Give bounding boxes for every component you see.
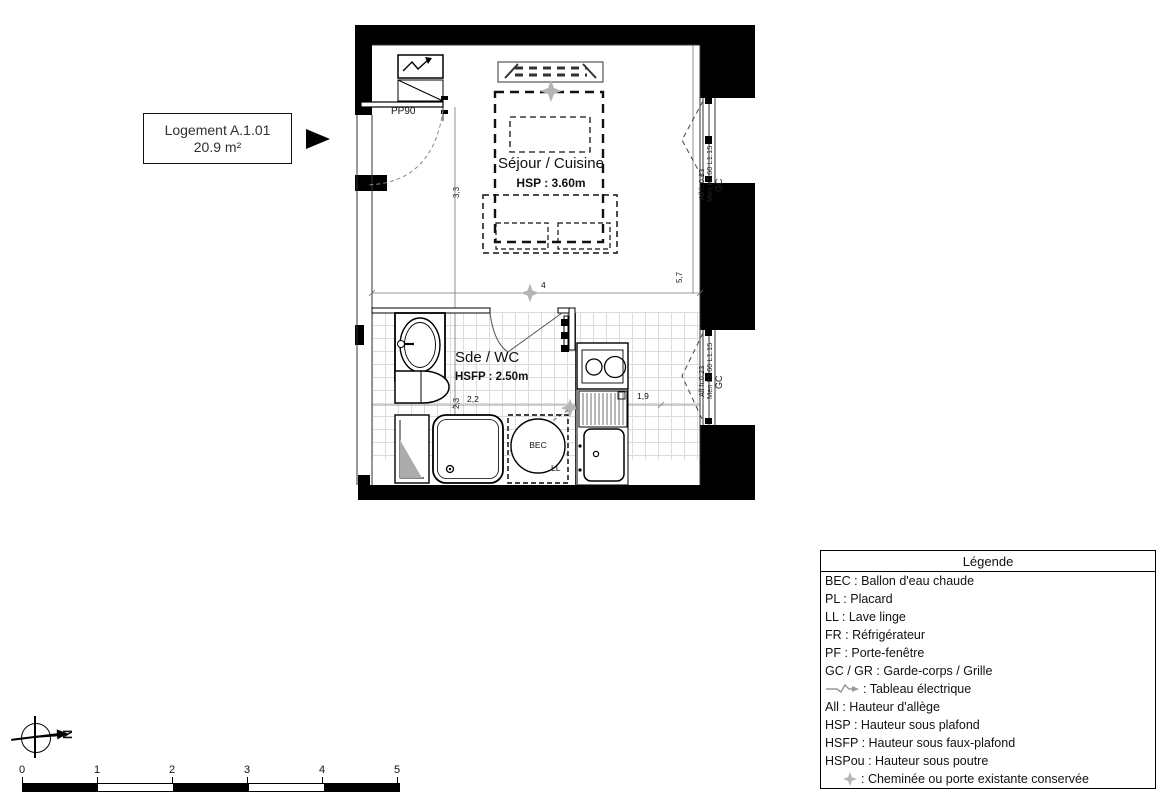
window-upper-menuiserie: Men h2.60 L1.15: [705, 146, 714, 202]
kitchen-unit: [577, 343, 628, 485]
legend-item-hsfp: HSFP : Hauteur sous faux-plafond: [821, 734, 1155, 752]
window-upper-gc: GC: [714, 179, 724, 193]
legend-item-cheminee: : Cheminée ou porte existante conservée: [821, 770, 1155, 788]
room-name-sejour: Séjour / Cuisine: [471, 155, 631, 172]
dim-bath-depth: 2,3: [452, 398, 461, 409]
legend-item-ll: LL : Lave linge: [821, 608, 1155, 626]
pointer-arrow-icon: [306, 129, 330, 149]
legend-item-hsp: HSP : Hauteur sous plafond: [821, 716, 1155, 734]
scale-tick-4: 4: [316, 764, 328, 776]
electrical-panel: [398, 55, 443, 101]
legend-item-fr: FR : Réfrigérateur: [821, 626, 1155, 644]
apartment-label-box: Logement A.1.01 20.9 m²: [143, 113, 292, 164]
legend-item-tableau: : Tableau électrique: [821, 680, 1155, 698]
room-name-sde: Sde / WC: [455, 349, 519, 366]
scale-tick-1: 1: [91, 764, 103, 776]
legend-item-gc-gr: GC / GR : Garde-corps / Grille: [821, 662, 1155, 680]
bathroom-cabinet: [395, 415, 429, 483]
dim-kitchen-width: 1,9: [637, 391, 649, 401]
window-lower-gc: GC: [714, 376, 724, 390]
dim-right: 5,7: [675, 272, 684, 283]
bec-label: BEC: [511, 440, 565, 450]
floor-plan-drawing: [355, 25, 755, 500]
scale-tick-3: 3: [241, 764, 253, 776]
electric-arrow-icon: [825, 683, 859, 695]
north-label: N: [60, 730, 75, 739]
legend-item-hspou: HSPou : Hauteur sous poutre: [821, 752, 1155, 770]
entrance-door-label: PP90: [391, 106, 415, 117]
scale-bar: [22, 783, 400, 792]
kitchen-sink: [584, 429, 624, 481]
ceiling-height-sde: HSFP : 2.50m: [455, 371, 528, 383]
dim-bath-width: 2,2: [467, 394, 479, 404]
floor-plan-page: Logement A.1.01 20.9 m²: [0, 0, 1167, 800]
door-swing-arc: [367, 110, 443, 185]
scale-tick-0: 0: [16, 764, 28, 776]
legend-item-pl: PL : Placard: [821, 590, 1155, 608]
ll-label: LL: [551, 463, 560, 473]
legend-item-bec: BEC : Ballon d'eau chaude: [821, 572, 1155, 590]
wc: [395, 371, 449, 403]
fireplace-star-icon: [843, 772, 857, 786]
ceiling-height-sejour: HSP : 3.60m: [471, 176, 631, 190]
scale-tick-5: 5: [391, 764, 403, 776]
window-lower-menuiserie: Men h2.60 L1.15: [705, 343, 714, 399]
dim-middle: 4: [541, 280, 546, 290]
legend-title: Légende: [821, 551, 1155, 572]
shower-tray: [433, 415, 503, 483]
scale-tick-2: 2: [166, 764, 178, 776]
apartment-name: Logement A.1.01: [165, 122, 271, 139]
legend-item-pf: PF : Porte-fenêtre: [821, 644, 1155, 662]
legend-box: Légende BEC : Ballon d'eau chaude PL : P…: [820, 550, 1156, 789]
legend-item-all: All : Hauteur d'allège: [821, 698, 1155, 716]
dim-left: 3,3: [452, 187, 461, 198]
bathroom-door-leaf: [490, 313, 508, 352]
apartment-area: 20.9 m²: [194, 139, 241, 156]
existing-features-dashed: [483, 92, 617, 253]
fireplace: [498, 62, 603, 82]
